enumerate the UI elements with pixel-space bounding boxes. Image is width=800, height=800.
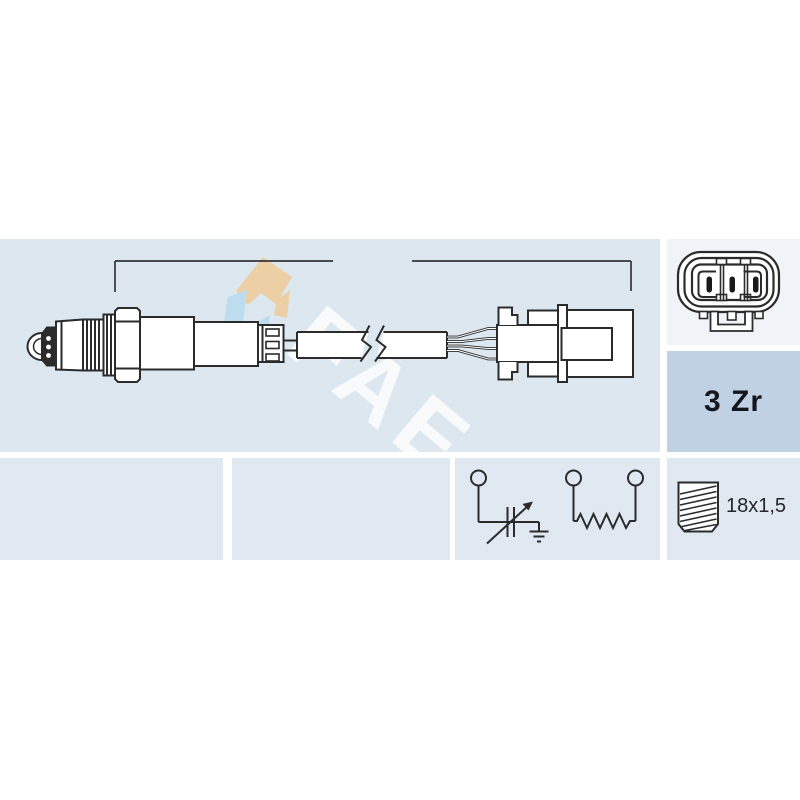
connector-housing (497, 305, 633, 382)
drawing-panel: FAE (0, 239, 660, 452)
heater-circuit-icon (566, 471, 643, 529)
zirconia-cell-circuit-icon (471, 471, 549, 544)
connector-face-icon (667, 239, 800, 345)
empty-box-2 (232, 458, 450, 560)
dimension-line (115, 261, 631, 292)
empty-box-1 (0, 458, 223, 560)
thread-size-label: 18x1,5 (726, 495, 786, 518)
spec-box: 3 Zr (667, 351, 800, 452)
connector-wires (447, 329, 498, 360)
circuit-box (455, 458, 660, 560)
connector-face-panel (667, 239, 800, 345)
oxygen-sensor-drawing: FAE (0, 239, 660, 452)
product-diagram-page: FAE (0, 0, 800, 800)
thread-box: 18x1,5 (667, 458, 800, 560)
sensor-body (27, 308, 297, 382)
fae-watermark-text: FAE (269, 287, 495, 452)
circuit-diagrams (455, 458, 660, 560)
spec-label: 3 Zr (704, 385, 763, 419)
